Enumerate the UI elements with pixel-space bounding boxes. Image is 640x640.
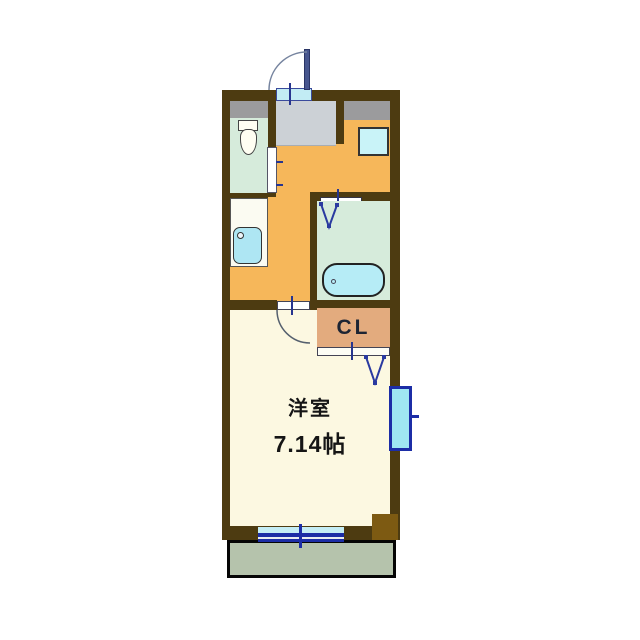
closet-label: CL [337,316,371,340]
hallway-door-swing-arc [273,306,317,350]
main-room-size: 7.14帖 [230,425,390,459]
balcony [227,540,396,578]
wall-segment [230,300,277,310]
window-right [389,386,412,451]
storage-cabinet [344,101,390,120]
main-room-label: 洋室 7.14帖 [230,392,390,459]
closet-folding-door-icon [362,354,388,388]
floorplan-canvas: CL 洋室 7.14帖 [0,0,640,640]
faucet-icon [237,232,244,239]
entry-floor [276,101,336,146]
wall-segment [336,90,344,144]
entry-door-swing-arc [262,44,312,94]
bathroom-folding-door-icon [317,201,341,231]
toilet-door [267,147,277,193]
main-room-name: 洋室 [230,392,390,421]
door-tick [276,184,283,186]
washing-machine-space [358,127,389,156]
door-tick [276,161,283,163]
corner-pillar [372,514,398,540]
wall-segment [310,300,390,308]
bathtub-drain [331,279,336,284]
door-tick [351,342,353,360]
window-tick [411,415,419,418]
shoe-cabinet [230,101,268,118]
closet-box: CL [317,308,390,347]
sliding-door-tick [299,524,302,548]
